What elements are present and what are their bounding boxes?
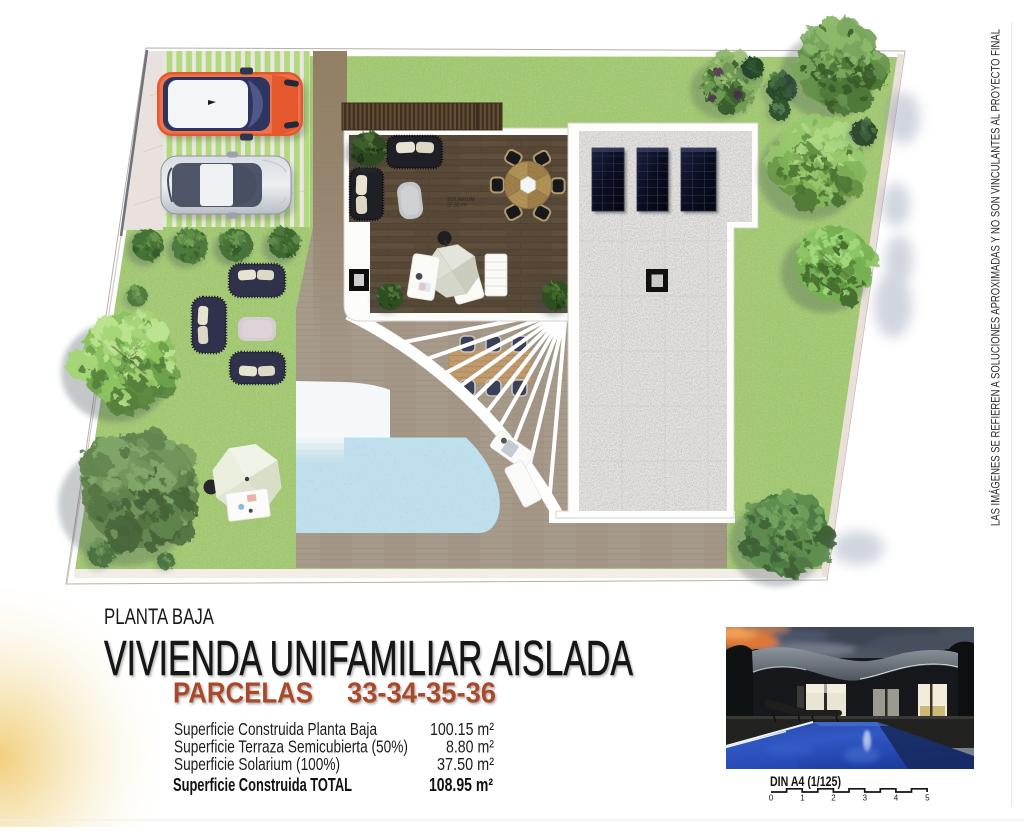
svg-text:DIN A4 (1/125): DIN A4 (1/125): [770, 773, 841, 789]
svg-text:2: 2: [831, 794, 836, 803]
svg-text:4: 4: [894, 794, 899, 803]
svg-text:5: 5: [925, 794, 930, 803]
svg-text:108.95 m²: 108.95 m²: [429, 775, 493, 795]
svg-text:37.50 m²: 37.50 m²: [437, 754, 494, 774]
svg-text:PLANTA BAJA: PLANTA BAJA: [104, 604, 214, 629]
svg-text:PARCELAS: PARCELAS: [173, 678, 313, 710]
svg-text:33-34-35-36: 33-34-35-36: [347, 678, 496, 710]
svg-text:37.50 m²: 37.50 m²: [447, 203, 467, 209]
svg-text:1: 1: [800, 794, 805, 803]
svg-text:LAS IMÁGENES SE REFIEREN A SOL: LAS IMÁGENES SE REFIEREN A SOLUCIONES AP…: [990, 29, 1003, 526]
svg-text:0: 0: [769, 794, 774, 803]
svg-text:Superficie Solarium (100%): Superficie Solarium (100%): [174, 754, 340, 774]
svg-text:Superficie Construida TOTAL: Superficie Construida TOTAL: [173, 775, 352, 795]
svg-text:3: 3: [863, 794, 868, 803]
